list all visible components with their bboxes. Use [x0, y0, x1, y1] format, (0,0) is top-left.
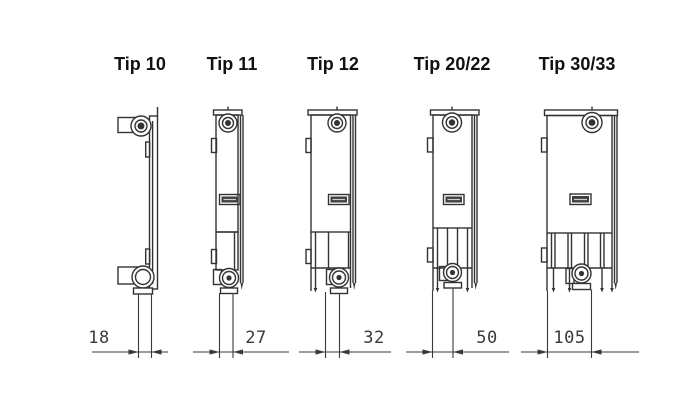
dimension-tip-12: [299, 292, 391, 358]
radiator-drawing-tip-20-22: [428, 107, 480, 293]
type-label-tip-12: Tip 12: [302, 54, 364, 74]
dimension-value-tip-12: 32: [354, 329, 394, 348]
type-label-tip-30-33: Tip 30/33: [537, 54, 617, 74]
type-label-tip-10: Tip 10: [109, 54, 171, 74]
radiator-types-diagram: Tip 10 Tip 11 Tip 12 Tip 20/22 Tip 30/33…: [0, 0, 700, 407]
dimension-value-tip-20-22: 50: [467, 329, 507, 348]
dimension-value-tip-10: 18: [79, 329, 119, 348]
radiator-drawing-tip-12: [306, 107, 357, 294]
type-label-tip-11: Tip 11: [201, 54, 263, 74]
type-label-tip-20-22: Tip 20/22: [412, 54, 492, 74]
radiator-drawing-tip-10: [118, 107, 158, 294]
dimension-value-tip-30-33: 105: [549, 329, 590, 348]
dimension-tip-11: [193, 293, 289, 358]
dimension-value-tip-11: 27: [236, 329, 276, 348]
radiator-drawing-tip-30-33: [542, 107, 618, 293]
radiator-drawing-tip-11: [212, 107, 244, 294]
dimension-tip-10: [92, 294, 168, 358]
